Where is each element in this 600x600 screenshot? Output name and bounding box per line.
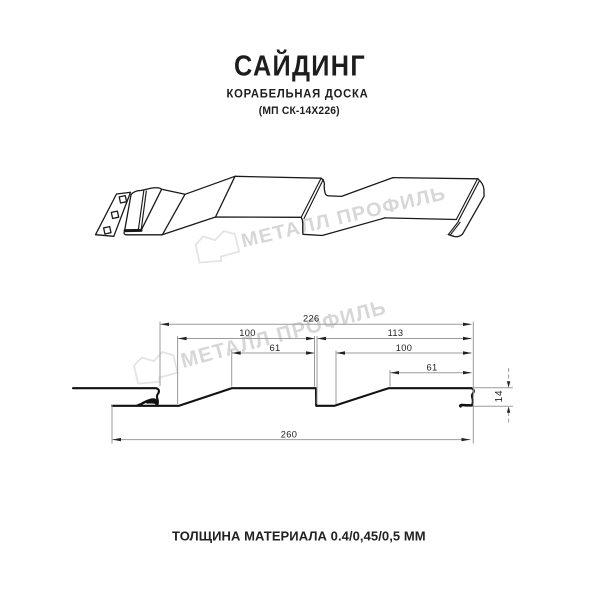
svg-text:61: 61 xyxy=(269,343,280,353)
svg-text:САЙДИНГ: САЙДИНГ xyxy=(234,49,366,82)
svg-text:14: 14 xyxy=(494,390,505,403)
svg-text:61: 61 xyxy=(426,362,437,372)
svg-text:ТОЛЩИНА МАТЕРИАЛА 0.4/0,45/0,5: ТОЛЩИНА МАТЕРИАЛА 0.4/0,45/0,5 ММ xyxy=(172,528,426,543)
svg-text:113: 113 xyxy=(388,328,404,338)
svg-text:100: 100 xyxy=(396,343,413,353)
svg-text:КОРАБЕЛЬНАЯ ДОСКА: КОРАБЕЛЬНАЯ ДОСКА xyxy=(227,86,369,100)
svg-text:260: 260 xyxy=(281,430,298,440)
svg-text:226: 226 xyxy=(303,314,320,324)
svg-text:(МП СК-14Х226): (МП СК-14Х226) xyxy=(259,105,340,117)
svg-text:МЕТАЛЛ ПРОФИЛЬ: МЕТАЛЛ ПРОФИЛЬ xyxy=(178,296,389,373)
svg-text:100: 100 xyxy=(239,328,256,338)
